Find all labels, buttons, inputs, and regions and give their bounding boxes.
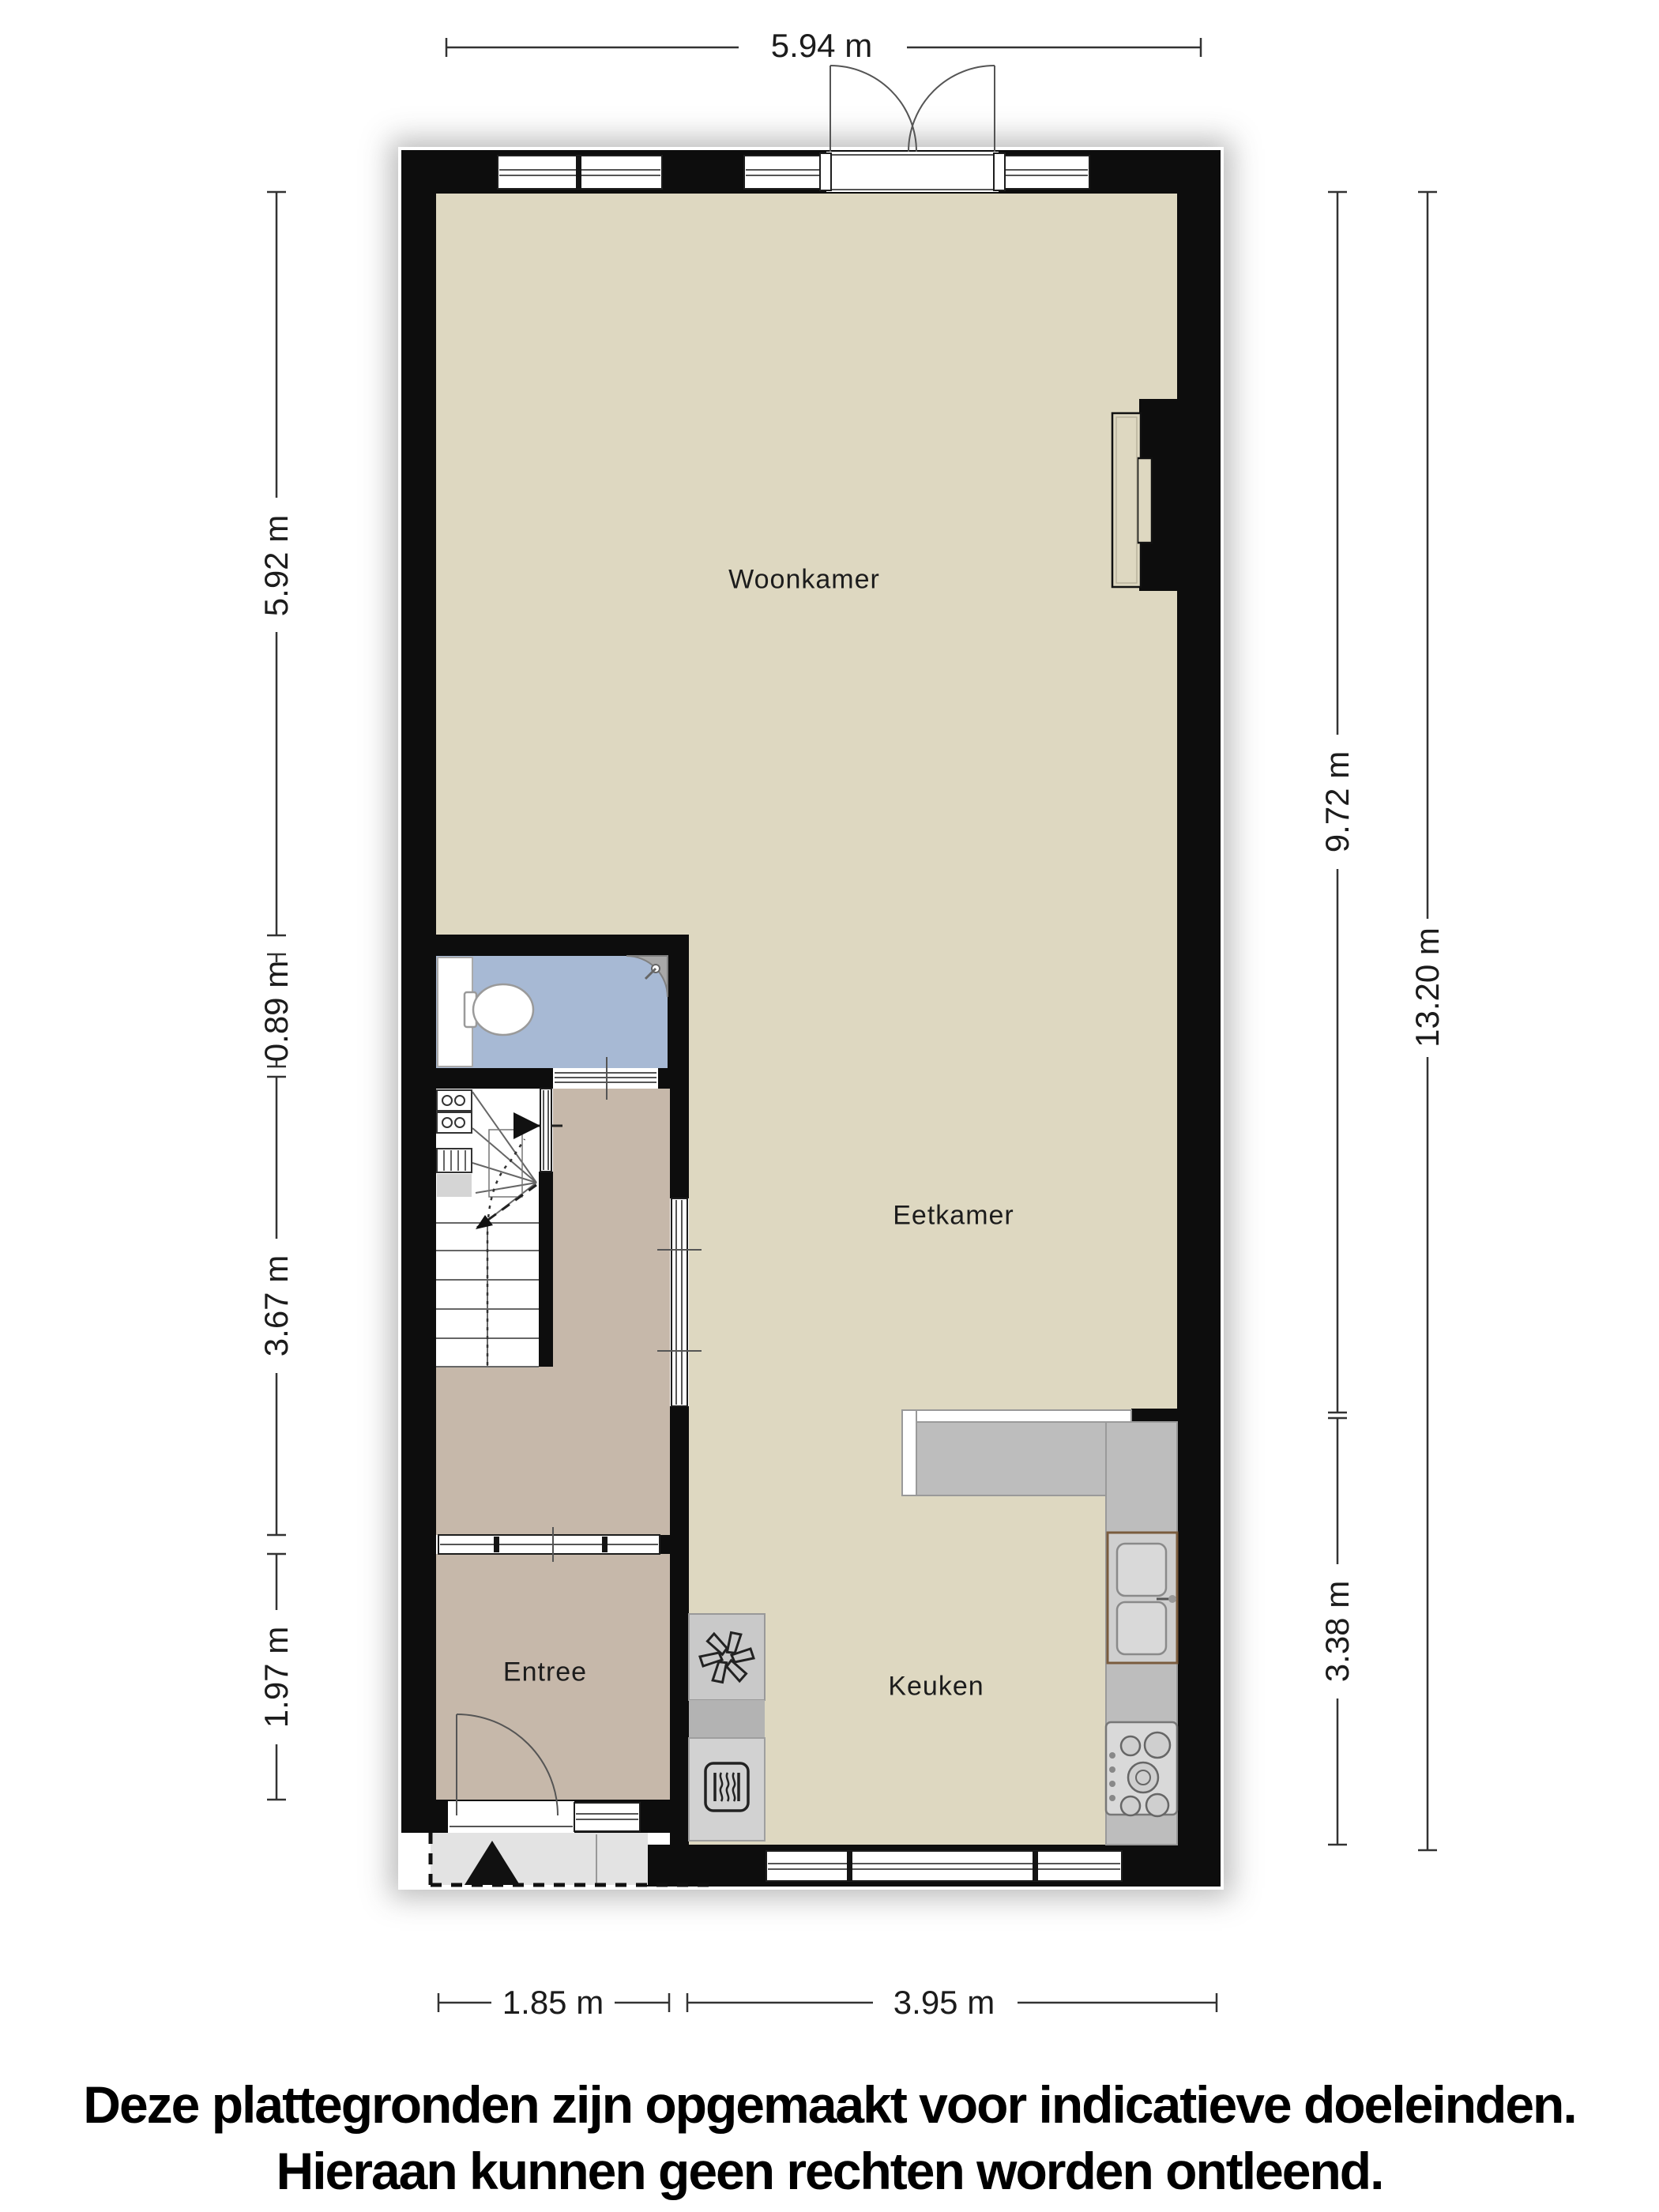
dim-left-2: 0.89 m xyxy=(258,961,295,1062)
cupboard-door xyxy=(437,1174,472,1197)
dim-right-1: 9.72 m xyxy=(1319,751,1356,852)
room-label-keuken: Keuken xyxy=(888,1672,984,1702)
kitchen-window xyxy=(766,1851,1122,1881)
dim-left-4: 1.97 m xyxy=(258,1627,295,1728)
stove-icon xyxy=(1106,1722,1177,1816)
hall-floor-lower xyxy=(436,1367,670,1535)
dim-bottom-2: 3.95 m xyxy=(893,1984,995,2022)
dim-top: 5.94 m xyxy=(771,27,872,65)
shelf-icon xyxy=(437,1149,472,1172)
dim-right-2: 13.20 m xyxy=(1409,927,1446,1048)
dim-right-3: 3.38 m xyxy=(1319,1581,1356,1682)
dim-bottom-1: 1.85 m xyxy=(502,1984,604,2022)
toilet-icon xyxy=(473,984,533,1035)
dim-left-3: 3.67 m xyxy=(258,1255,295,1356)
dim-left-1: 5.92 m xyxy=(258,515,295,616)
meter-cupboard xyxy=(436,1089,472,1223)
window xyxy=(744,156,826,189)
floor-areas xyxy=(436,194,1177,1845)
disclaimer-line-2: Hieraan kunnen geen rechten worden ontle… xyxy=(0,2141,1659,2201)
window xyxy=(999,156,1089,189)
floorplan-drawing xyxy=(0,0,1659,2212)
french-doors xyxy=(820,66,1005,192)
disclaimer-line-1: Deze plattegronden zijn opgemaakt voor i… xyxy=(0,2075,1659,2135)
room-label-entree: Entree xyxy=(503,1657,587,1688)
room-label-eetkamer: Eetkamer xyxy=(893,1201,1014,1232)
sidelight-window xyxy=(574,1803,640,1831)
floorplan-page: Woonkamer Eetkamer Keuken Entree 5.94 m … xyxy=(0,0,1659,2212)
sink-icon xyxy=(1108,1533,1177,1663)
room-label-woonkamer: Woonkamer xyxy=(728,565,880,596)
